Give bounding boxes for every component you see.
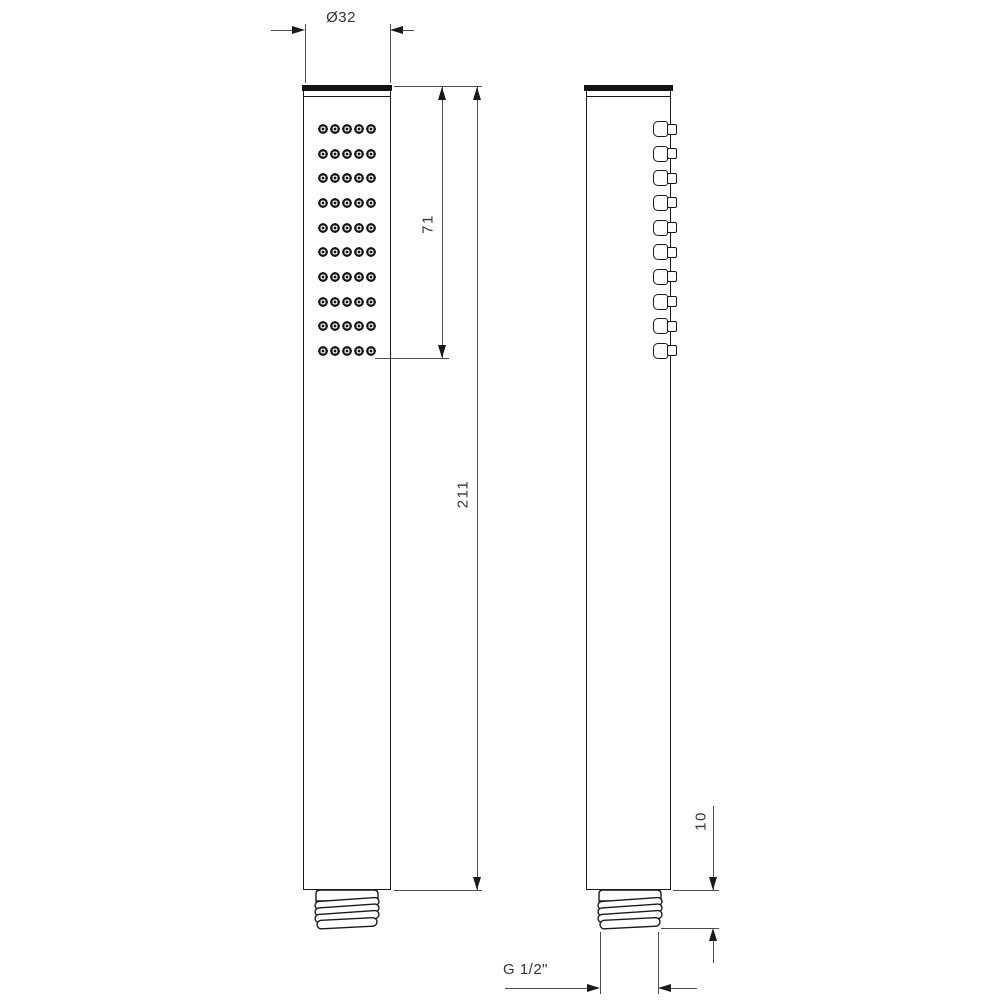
dim-thread-spec-label: G 1/2" [503, 961, 548, 978]
nozzle-dot [354, 272, 364, 282]
nozzle-dot [330, 297, 340, 307]
arrow-down-icon [473, 877, 481, 890]
nozzle-dot [354, 149, 364, 159]
arrow-right-icon [292, 26, 305, 34]
arrow-down-icon [438, 345, 446, 358]
arrow-left-icon [658, 984, 671, 992]
nozzle-dot [318, 346, 328, 356]
nozzle-bump [653, 343, 668, 359]
extension-line [390, 24, 391, 83]
nozzle-dot [318, 223, 328, 233]
nozzle-bump [653, 294, 668, 310]
nozzle-bump-tip [667, 148, 677, 159]
nozzle-bump-tip [667, 197, 677, 208]
front-cap-line [304, 96, 390, 97]
dim-line [271, 30, 293, 31]
nozzle-dot [342, 223, 352, 233]
nozzle-bump-tip [667, 271, 677, 282]
nozzle-dot [330, 124, 340, 134]
nozzle-dot [342, 346, 352, 356]
nozzle-bump-tip [667, 345, 677, 356]
nozzle-bump [653, 195, 668, 211]
nozzle-dot [330, 272, 340, 282]
nozzle-bump-tip [667, 321, 677, 332]
nozzle-dot [366, 149, 376, 159]
arrow-up-icon [473, 87, 481, 100]
arrow-up-icon [438, 87, 446, 100]
side-thread-connector [597, 889, 663, 932]
arrow-right-icon [587, 984, 600, 992]
nozzle-dot [318, 124, 328, 134]
dim-line [671, 988, 697, 989]
nozzle-dot [354, 198, 364, 208]
nozzle-bump [653, 146, 668, 162]
nozzle-dot [342, 149, 352, 159]
dim-line [477, 87, 478, 890]
dim-thread-length-label: 10 [693, 811, 710, 831]
extension-line [375, 358, 449, 359]
dim-line [403, 30, 414, 31]
arrow-down-icon [709, 877, 717, 890]
nozzle-bump-tip [667, 296, 677, 307]
extension-line [600, 932, 601, 994]
nozzle-dot [330, 223, 340, 233]
nozzle-bump-tip [667, 247, 677, 258]
nozzle-bump-tip [667, 124, 677, 135]
nozzle-dot [354, 297, 364, 307]
nozzle-dot [330, 149, 340, 159]
nozzle-dot [318, 198, 328, 208]
nozzle-dot [366, 198, 376, 208]
dim-diameter-label: Ø32 [326, 9, 356, 26]
front-top-cap [302, 85, 392, 91]
nozzle-dot [342, 272, 352, 282]
nozzle-dot [318, 297, 328, 307]
nozzle-dot [354, 124, 364, 134]
nozzle-bump [653, 220, 668, 236]
nozzle-dot [354, 346, 364, 356]
extension-line [394, 890, 482, 891]
side-top-cap [584, 85, 673, 91]
nozzle-bump [653, 170, 668, 186]
extension-line [658, 932, 659, 994]
nozzle-dot [342, 297, 352, 307]
nozzle-dot [366, 124, 376, 134]
extension-line [305, 24, 306, 83]
side-cap-line [587, 96, 670, 97]
nozzle-dot [366, 272, 376, 282]
nozzle-bump [653, 121, 668, 137]
nozzle-dot [366, 346, 376, 356]
nozzle-bump-tip [667, 222, 677, 233]
nozzle-dot [330, 346, 340, 356]
nozzle-bump [653, 269, 668, 285]
nozzle-dot [318, 272, 328, 282]
nozzle-dot [366, 297, 376, 307]
extension-line [661, 928, 719, 929]
dim-total-height-label: 211 [455, 480, 472, 508]
extension-line [673, 890, 719, 891]
nozzle-dot [330, 198, 340, 208]
nozzle-dot [354, 223, 364, 233]
dim-nozzle-area-label: 71 [420, 214, 437, 234]
nozzle-dot [342, 124, 352, 134]
dim-line [505, 988, 588, 989]
dim-line [713, 940, 714, 963]
nozzle-dot [342, 198, 352, 208]
nozzle-bump-tip [667, 173, 677, 184]
front-thread-connector [314, 889, 380, 932]
arrow-left-icon [390, 26, 403, 34]
nozzle-dot [318, 149, 328, 159]
dim-line [442, 87, 443, 358]
nozzle-dot [366, 223, 376, 233]
technical-drawing: Ø32 71 211 10 G 1/2" [0, 0, 1000, 1000]
nozzle-bump [653, 318, 668, 334]
nozzle-bump [653, 244, 668, 260]
